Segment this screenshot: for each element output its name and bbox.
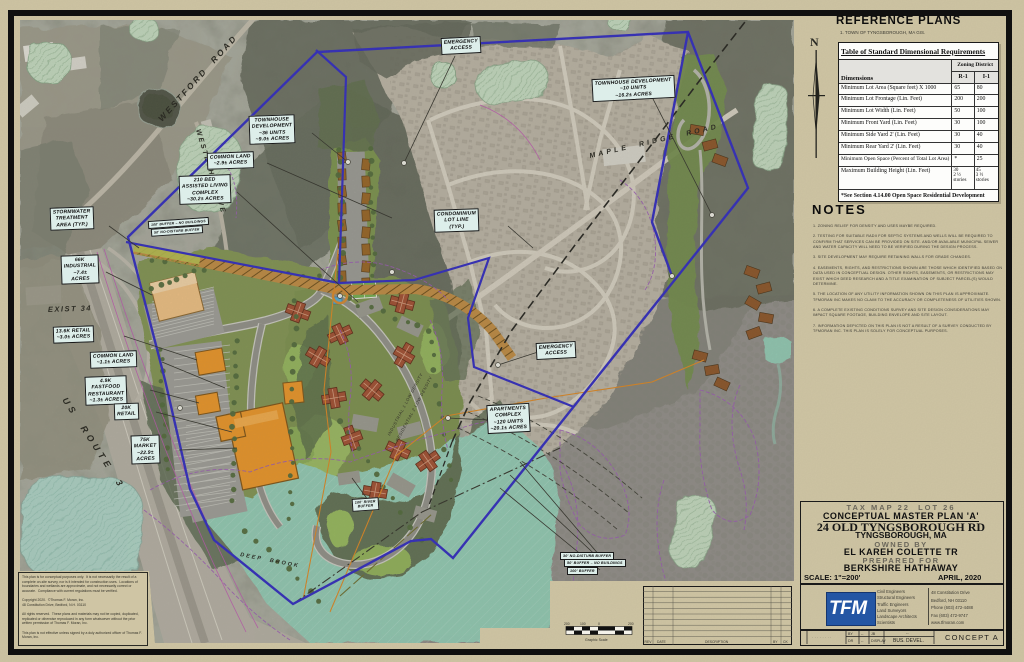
svg-text:DATE: DATE	[657, 640, 667, 644]
svg-text:REV: REV	[645, 640, 653, 644]
svg-text:DISPLAY: DISPLAY	[871, 639, 887, 643]
svg-text:CONCEPT A: CONCEPT A	[945, 633, 999, 642]
svg-text:JB: JB	[871, 632, 876, 636]
svg-text:BY: BY	[773, 640, 778, 644]
svg-text:200: 200	[564, 622, 570, 626]
svg-text:100: 100	[580, 622, 586, 626]
svg-text:--: --	[906, 631, 909, 636]
svg-text:0: 0	[598, 622, 600, 626]
svg-text:DESCRIPTION: DESCRIPTION	[705, 640, 729, 644]
svg-text:Graphic Scale: Graphic Scale	[585, 638, 608, 642]
svg-text:N: N	[810, 35, 819, 49]
svg-text:--: --	[861, 632, 864, 636]
svg-text:BY: BY	[848, 632, 853, 636]
svg-text:BUS. DEVEL.: BUS. DEVEL.	[893, 638, 924, 644]
svg-text:........: ........	[812, 634, 833, 639]
svg-text:DR: DR	[848, 639, 854, 643]
svg-text:200: 200	[628, 622, 634, 626]
svg-text:--: --	[861, 639, 864, 643]
svg-text:CK: CK	[783, 640, 788, 644]
